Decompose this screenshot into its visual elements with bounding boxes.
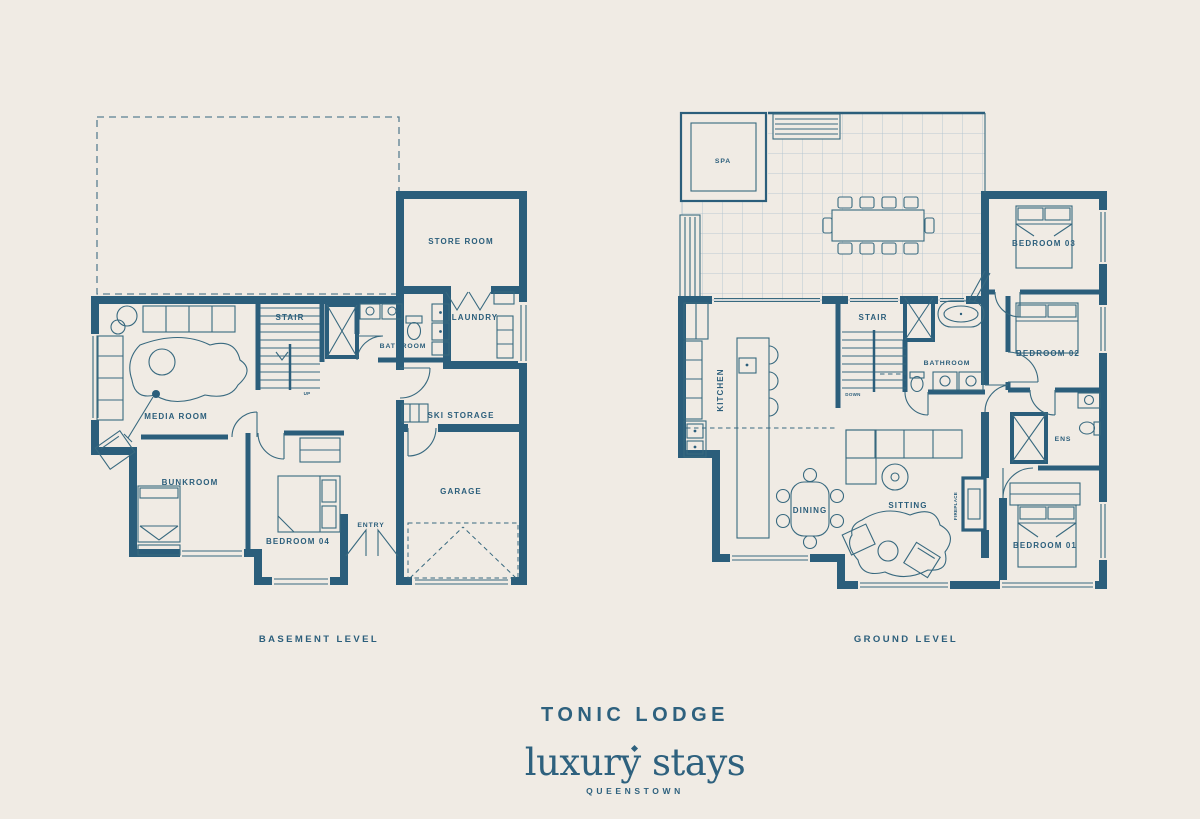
room-label-ski-storage: SKI STORAGE: [427, 411, 494, 420]
footer-branding: TONIC LODGE luxury stays QUEENSTOWN: [435, 704, 835, 796]
ground-stair-down-label: DOWN: [845, 392, 860, 397]
ground-spa: [679, 111, 768, 202]
room-label-spa: SPA: [715, 158, 731, 165]
basement-level-label: BASEMENT LEVEL: [259, 634, 379, 645]
room-label-store-room: STORE ROOM: [428, 237, 494, 246]
basement-stair-up-label: UP: [304, 391, 311, 396]
ground-level-label: GROUND LEVEL: [854, 634, 958, 645]
ground-bedroom01-furniture: [1010, 483, 1080, 567]
brand-logo: luxury stays: [435, 743, 835, 784]
basement-door-arcs: [232, 336, 436, 459]
room-label-bedroom-01: BEDROOM 01: [1013, 541, 1077, 550]
room-label-bedroom-03: BEDROOM 03: [1012, 239, 1076, 248]
floor-plan-sheet: UP: [0, 0, 1200, 819]
ground-elevator-shaft-icon: [905, 298, 933, 340]
basement-terrace-outline: [97, 117, 399, 294]
room-label-bathroom: BATHROOM: [380, 343, 427, 350]
room-label-bunkroom: BUNKROOM: [162, 478, 219, 487]
ground-fireplace-icon: [963, 478, 985, 530]
basement-ski-storage-fixtures: [402, 404, 428, 422]
room-label-ens: ENS: [1055, 436, 1072, 443]
room-label-kitchen: KITCHEN: [716, 368, 725, 411]
basement-bunkroom-furniture: [138, 486, 180, 555]
room-label-dining: DINING: [793, 506, 828, 515]
room-label-fireplace: FIREPLACE: [953, 492, 958, 520]
room-label-media-room: MEDIA ROOM: [144, 412, 208, 421]
brand-location: QUEENSTOWN: [435, 786, 835, 796]
ground-bathroom-fixtures: [910, 301, 984, 392]
room-label-sitting: SITTING: [888, 501, 927, 510]
ground-bedroom03-furniture: [1016, 206, 1072, 268]
ground-stair: DOWN: [842, 330, 906, 397]
ground-floor-plan: DOWN: [660, 100, 1115, 655]
ground-bedroom02-furniture: [1016, 303, 1078, 353]
room-label-garage: GARAGE: [440, 487, 482, 496]
room-label-bathroom-ground: BATHROOM: [924, 360, 971, 367]
basement-bedroom04-furniture: [278, 438, 340, 532]
basement-garage-driveway: [408, 523, 518, 578]
basement-floor-plan: UP: [85, 105, 545, 655]
room-label-stair: STAIR: [276, 313, 305, 322]
basement-store-room-doors: [446, 292, 491, 310]
basement-entry-doors: [346, 530, 398, 556]
room-label-bedroom-02: BEDROOM 02: [1016, 349, 1080, 358]
room-label-bedroom-04: BEDROOM 04: [266, 537, 330, 546]
basement-laundry-fixtures: [494, 292, 514, 358]
ground-ensuite-fixtures: [1012, 393, 1100, 462]
basement-elevator-shaft-icon: [327, 305, 357, 357]
basement-media-room-furniture: [95, 306, 247, 469]
property-title: TONIC LODGE: [435, 704, 835, 727]
room-label-stair-ground: STAIR: [859, 313, 888, 322]
room-label-entry: ENTRY: [357, 522, 384, 529]
room-label-laundry: LAUNDRY: [452, 313, 499, 322]
